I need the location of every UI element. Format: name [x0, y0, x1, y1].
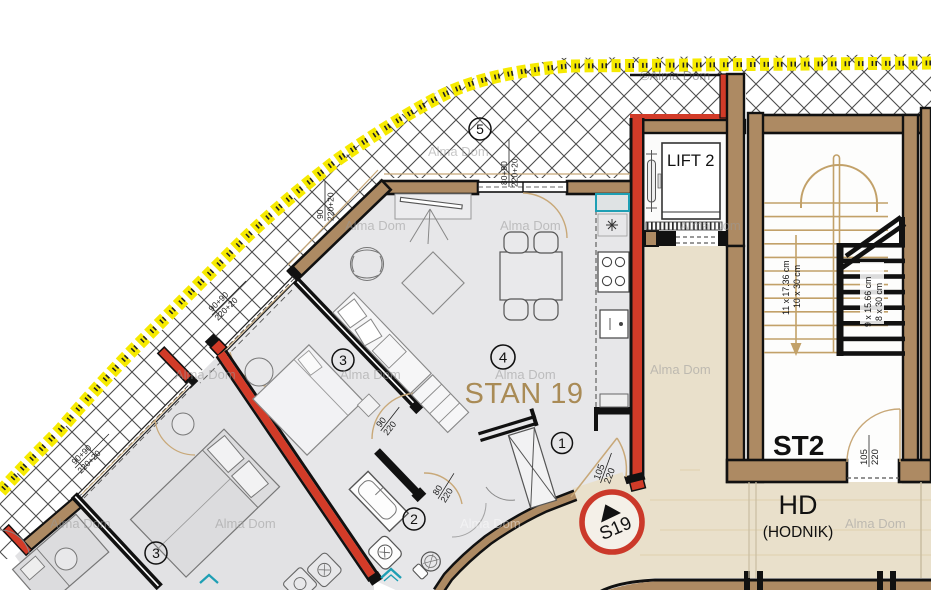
svg-text:Alma Dom: Alma Dom [345, 218, 406, 233]
svg-text:11 x 17.36 cm: 11 x 17.36 cm [781, 260, 791, 315]
svg-text:5: 5 [476, 121, 484, 137]
svg-text:105: 105 [859, 449, 870, 465]
svg-text:2: 2 [410, 511, 418, 527]
svg-text:(HODNIK): (HODNIK) [763, 524, 834, 541]
svg-text:220+20: 220+20 [510, 158, 520, 187]
svg-text:LIFT 2: LIFT 2 [667, 152, 714, 170]
svg-text:Alma Dom: Alma Dom [495, 367, 556, 382]
svg-text:1: 1 [558, 435, 566, 451]
svg-text:HD: HD [779, 490, 818, 520]
svg-text:Alma Dom: Alma Dom [680, 218, 741, 233]
svg-text:10 x 30 cm: 10 x 30 cm [792, 265, 802, 308]
svg-text:Alma Dom: Alma Dom [175, 367, 236, 382]
svg-text:Alma Dom: Alma Dom [845, 516, 906, 531]
svg-text:Alma Dom: Alma Dom [215, 516, 276, 531]
svg-text:220: 220 [870, 449, 881, 465]
svg-text:Alma Dom: Alma Dom [500, 218, 561, 233]
svg-text:ST2: ST2 [773, 430, 824, 461]
svg-text:4: 4 [499, 350, 507, 367]
svg-text:Alma Dom: Alma Dom [650, 362, 711, 377]
svg-text:8 x 30 cm: 8 x 30 cm [874, 283, 884, 321]
svg-text:Alma Dom: Alma Dom [50, 516, 111, 531]
svg-text:©Alma Dom: ©Alma Dom [640, 68, 710, 83]
svg-text:Alma Dom: Alma Dom [428, 144, 489, 159]
svg-text:9 x 15.66 cm: 9 x 15.66 cm [863, 277, 873, 327]
svg-text:80+90: 80+90 [499, 161, 509, 185]
svg-text:3: 3 [339, 352, 347, 368]
svg-text:220+20: 220+20 [326, 192, 336, 221]
svg-text:3: 3 [152, 545, 160, 561]
svg-text:Alma Dom: Alma Dom [340, 367, 401, 382]
svg-text:STAN 19: STAN 19 [464, 378, 583, 410]
svg-text:Alma Dom: Alma Dom [460, 516, 521, 531]
svg-text:90: 90 [315, 209, 325, 219]
